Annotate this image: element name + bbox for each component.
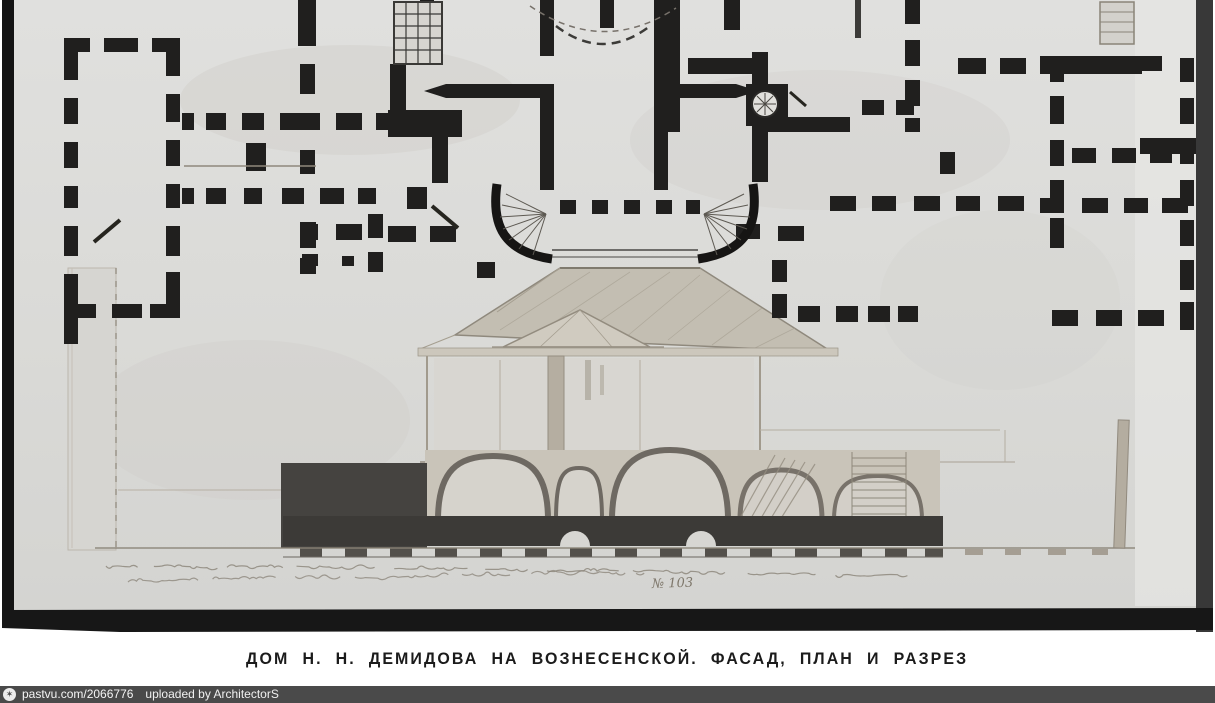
watermark-bar: ✶ pastvu.com/2066776 uploaded by Archite…	[0, 686, 1215, 703]
round-stove	[752, 91, 778, 117]
top-right-hatch	[1100, 2, 1134, 44]
caption-band: ДОМ Н. Н. ДЕМИДОВА НА ВОЗНЕСЕНСКОЙ. ФАСА…	[0, 632, 1215, 686]
frame-border-left	[2, 0, 14, 614]
basement-arches	[425, 450, 940, 520]
photo-caption: ДОМ Н. Н. ДЕМИДОВА НА ВОЗНЕСЕНСКОЙ. ФАСА…	[246, 649, 968, 669]
stove-grid	[394, 2, 442, 64]
archival-photo-page: № 103 ДОМ Н. Н. ДЕМИДОВА НА ВОЗНЕСЕНСКОЙ…	[0, 0, 1215, 703]
watermark-site-text: pastvu.com/2066776	[22, 686, 133, 703]
inscription-number: № 103	[651, 576, 694, 592]
frame-border-bottom	[2, 608, 1213, 632]
watermark-uploader-text: uploaded by ArchitectorS	[145, 686, 278, 703]
scanned-architectural-drawing: № 103	[0, 0, 1215, 632]
frame-border-right	[1196, 0, 1213, 632]
pastvu-logo-icon: ✶	[3, 688, 16, 701]
